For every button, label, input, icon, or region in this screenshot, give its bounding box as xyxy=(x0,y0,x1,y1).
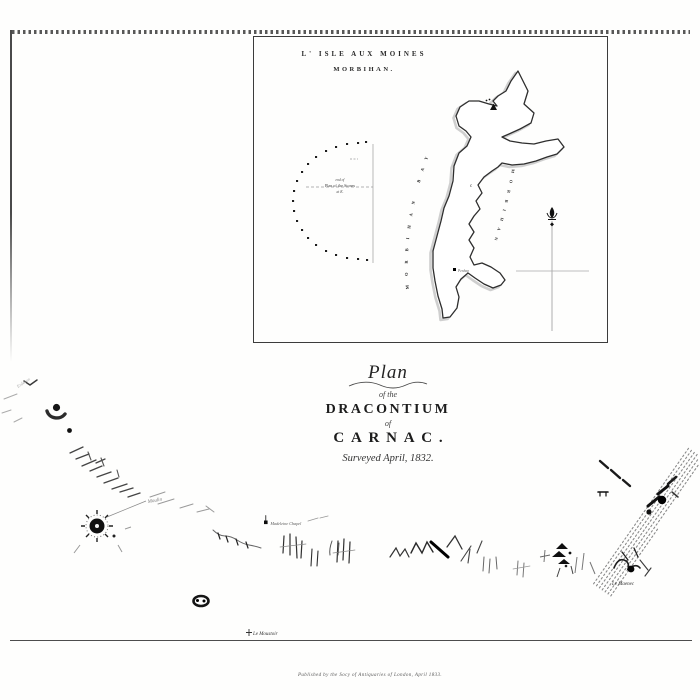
label-le-maenec: Le Maenec xyxy=(611,582,635,587)
central-stone-row: Madeleine Chapel xyxy=(213,516,530,578)
imprint: Published by the Socy of Antiquaries of … xyxy=(230,673,510,678)
title-of-the: of the xyxy=(288,390,488,399)
dolmen-site-label: Penhap xyxy=(457,269,469,273)
cromlech-dotted-arc xyxy=(293,142,367,260)
bay-text-west: MORBIHAN BAY xyxy=(404,148,433,290)
stones-note-line3: at K. xyxy=(302,190,378,195)
stone-rows-west: Erdeven xyxy=(2,376,214,512)
map-title: Plan of the DRACONTIUM of CARNAC. Survey… xyxy=(288,363,488,464)
engraved-plate: L' ISLE AUX MOINES MORBIHAN. xyxy=(0,0,700,700)
dolmen-site-icon xyxy=(453,268,456,271)
label-le-moustoir: Le Moustoir xyxy=(252,632,278,637)
stones-note: end of Plan of the Stones at K. xyxy=(302,178,378,195)
plate-top-border xyxy=(12,30,690,34)
title-surveyed: Surveyed April, 1832. xyxy=(288,453,488,464)
label-moulin: Moulin xyxy=(146,497,163,505)
plate-left-border xyxy=(10,30,12,362)
label-chapel: Madeleine Chapel xyxy=(270,521,303,526)
title-of: of xyxy=(288,419,488,428)
tumulus-icon: Moulin xyxy=(74,497,163,553)
label-erdeven: Erdeven xyxy=(15,376,32,389)
inset-map: L' ISLE AUX MOINES MORBIHAN. xyxy=(253,36,608,343)
cairn-cluster-icon xyxy=(540,543,595,577)
dolmen-table-icon xyxy=(598,492,608,496)
title-dracontium: DRACONTIUM xyxy=(288,402,488,418)
plate-bottom-border xyxy=(10,640,692,641)
eastern-alignment-band: Le Maenec xyxy=(594,447,699,596)
title-carnac: CARNAC. xyxy=(288,430,488,447)
compass-north-icon xyxy=(516,207,589,331)
bottom-site: Le Moustoir xyxy=(246,629,278,637)
ringed-dolmen-icon xyxy=(194,596,209,606)
island-ile-aux-moines xyxy=(431,71,565,320)
title-plan: Plan xyxy=(288,363,488,383)
bay-text-east: MORBIHAN xyxy=(491,169,516,248)
